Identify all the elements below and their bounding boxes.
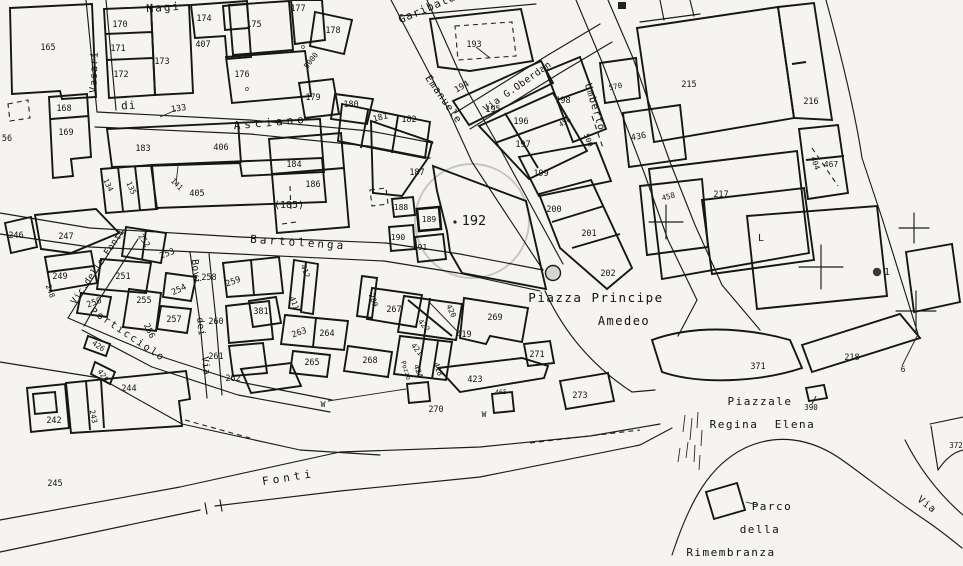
parcel-label-570: 570 bbox=[608, 81, 624, 93]
parcel-label-179: 179 bbox=[305, 93, 320, 103]
parcel-label-201: 201 bbox=[581, 229, 596, 239]
fountain-circle-icon bbox=[546, 266, 561, 281]
parcel-label-371: 371 bbox=[750, 362, 765, 372]
survey-point-icon bbox=[873, 268, 881, 276]
parcel-label-202: 202 bbox=[600, 269, 615, 279]
parcel-label-191: 191 bbox=[413, 243, 428, 252]
parcel-label-251: 251 bbox=[115, 272, 130, 282]
parcel-label-183: 183 bbox=[135, 144, 150, 154]
parcel-label-245: 245 bbox=[47, 479, 62, 489]
parcel-label-254: 254 bbox=[170, 282, 188, 298]
street-label-piazzale: Piazzale bbox=[728, 395, 793, 408]
parcel-label-195: 195 bbox=[485, 105, 500, 115]
parcel-label-198: 198 bbox=[555, 96, 570, 106]
symbol-label-o: o bbox=[245, 85, 249, 93]
symbol-label-w: W bbox=[482, 410, 487, 419]
parcel-label-273: 273 bbox=[572, 391, 587, 401]
parcel-label-165: 165 bbox=[40, 43, 55, 53]
parcel-label-246: 246 bbox=[8, 231, 23, 241]
parcel-label-180: 180 bbox=[343, 100, 358, 110]
parcel-label-271: 271 bbox=[529, 350, 544, 360]
street-label-elena: Elena bbox=[775, 418, 816, 431]
parcel-label--185-: (185) bbox=[274, 200, 304, 211]
street-label-bartolenga: Bartolenga bbox=[250, 233, 347, 253]
parcel-label-133: 133 bbox=[170, 103, 187, 115]
parcel-label-182: 182 bbox=[401, 115, 416, 125]
parcel-label-187: 187 bbox=[409, 168, 424, 178]
street-label-amedeo: Amedeo bbox=[598, 314, 650, 328]
street-label-bovi: Bovi bbox=[189, 259, 203, 285]
parcel-label-257: 257 bbox=[166, 315, 181, 325]
parcel-label-188: 188 bbox=[394, 203, 409, 212]
parcel-label-217: 217 bbox=[713, 190, 728, 200]
parcel-label-215: 215 bbox=[681, 80, 696, 90]
symbol-label-6: 6 bbox=[901, 365, 906, 374]
parcel-label-407: 407 bbox=[195, 40, 210, 50]
parcel-label-419: 419 bbox=[456, 330, 471, 340]
parcel-label-186: 186 bbox=[305, 180, 320, 190]
parcel-label-218: 218 bbox=[844, 353, 859, 363]
parcel-label-267: 267 bbox=[386, 305, 401, 315]
parcel-label-390: 390 bbox=[804, 403, 818, 412]
parcel-label-467: 467 bbox=[824, 160, 839, 169]
parcel-label-193: 193 bbox=[466, 40, 481, 50]
map-canvas[interactable]: MagiVasaridiAscianoGaribaldiEmanueleVia … bbox=[0, 0, 963, 566]
parcel-label-172: 172 bbox=[113, 70, 128, 80]
symbol-label-1: 1 bbox=[884, 267, 890, 278]
parcel-label-247: 247 bbox=[58, 232, 73, 242]
street-label-della: della bbox=[740, 523, 781, 536]
parcel-label-250: 250 bbox=[85, 296, 103, 311]
street-label-magi: Magi bbox=[146, 0, 181, 15]
parcel-label-216: 216 bbox=[803, 97, 818, 107]
church-cross-icons bbox=[649, 205, 936, 331]
street-label-regina: Regina bbox=[710, 418, 759, 431]
parcel-label-456: 456 bbox=[558, 116, 573, 129]
street-label-parco: Parco bbox=[752, 500, 793, 513]
vegetation-hatch bbox=[678, 412, 702, 470]
parcel-label-260: 260 bbox=[208, 317, 223, 327]
parcel-label-244: 244 bbox=[121, 384, 136, 394]
parcel-label-190: 190 bbox=[391, 233, 406, 242]
street-label-piazza-principe: Piazza Principe bbox=[528, 290, 663, 305]
symbol-label-o: o bbox=[301, 43, 305, 51]
parcel-label-405: 405 bbox=[189, 189, 204, 199]
parcel-label-252: 252 bbox=[136, 232, 152, 249]
parcel-label-412: 412 bbox=[299, 263, 312, 279]
parcel-label-255: 255 bbox=[136, 296, 151, 306]
parcel-label-425: 425 bbox=[95, 367, 110, 383]
parcel-label-197: 197 bbox=[515, 140, 530, 150]
parcel-label-261: 261 bbox=[208, 352, 223, 362]
parcel-label-372: 372 bbox=[949, 441, 963, 450]
parcel-label-249: 249 bbox=[52, 272, 67, 282]
parcel-label-170: 170 bbox=[112, 20, 127, 30]
parcel-label-189: 189 bbox=[422, 215, 437, 224]
parcel-label-178: 178 bbox=[325, 26, 340, 36]
parcel-label-423: 423 bbox=[467, 375, 482, 385]
parcel-label-56: 56 bbox=[2, 134, 12, 144]
map-mark bbox=[618, 2, 626, 9]
parcel-label-256: 256 bbox=[141, 322, 157, 340]
parcel-label-262: 262 bbox=[225, 374, 240, 384]
parcel-label-465: 465 bbox=[495, 388, 507, 396]
parcel-label-175: 175 bbox=[246, 20, 261, 30]
symbol-label-w: W bbox=[321, 400, 326, 409]
parcel-label-436: 436 bbox=[630, 131, 647, 144]
parcel-label-269: 269 bbox=[487, 313, 502, 323]
parcel-label-268: 268 bbox=[362, 356, 377, 366]
building-outlines bbox=[5, 0, 960, 519]
parcel-label-184: 184 bbox=[286, 160, 301, 170]
street-label-di: di bbox=[121, 98, 137, 112]
symbol-label-l: L bbox=[758, 233, 764, 244]
parcel-label-259: 259 bbox=[224, 275, 242, 290]
parcel-label-177: 177 bbox=[290, 4, 305, 14]
street-label-dei: dei bbox=[194, 317, 207, 337]
parcel-label-406: 406 bbox=[213, 143, 228, 153]
parcel-label-422: 422 bbox=[416, 317, 432, 333]
parcel-label-176: 176 bbox=[234, 70, 249, 80]
street-label-vasari: Vasari bbox=[88, 51, 100, 93]
parcel-label-168: 168 bbox=[56, 104, 71, 114]
parcel-label-458: 458 bbox=[661, 190, 677, 202]
street-label-asciano: Asciano bbox=[233, 113, 308, 132]
parcel-label-192: 192 bbox=[462, 213, 486, 229]
parcel-label-196: 196 bbox=[513, 117, 528, 127]
parcel-label-200: 200 bbox=[546, 205, 561, 215]
street-label-fonti: Fonti bbox=[261, 467, 316, 488]
parcel-label-171: 171 bbox=[110, 44, 125, 54]
parcel-label-181: 181 bbox=[372, 111, 389, 125]
parcel-label-169: 169 bbox=[58, 128, 73, 138]
parcel-label-381: 381 bbox=[253, 307, 268, 317]
parcel-label-pozzo: Pozzo bbox=[399, 360, 413, 381]
parcel-192-centroid-dot bbox=[453, 220, 456, 223]
street-label-via: Via bbox=[915, 494, 938, 516]
parcel-label-141: 141 bbox=[169, 176, 185, 192]
parcel-label-242: 242 bbox=[46, 416, 61, 426]
parcel-label-174: 174 bbox=[196, 14, 211, 24]
parcel-label-248: 248 bbox=[44, 283, 57, 299]
parcel-label-418: 418 bbox=[432, 361, 445, 377]
parcel-label-258: 258 bbox=[201, 273, 216, 283]
parcel-label-270: 270 bbox=[428, 405, 443, 415]
parcel-label-199: 199 bbox=[533, 169, 548, 179]
parcel-label-420: 420 bbox=[444, 303, 458, 320]
parcel-label-253: 253 bbox=[158, 247, 176, 262]
label-layer: MagiVasaridiAscianoGaribaldiEmanueleVia … bbox=[2, 0, 963, 559]
parcel-label-173: 173 bbox=[154, 57, 169, 67]
parcel-label-265: 265 bbox=[304, 358, 319, 368]
parcel-label-263: 263 bbox=[290, 326, 308, 341]
cadastral-map: MagiVasaridiAscianoGaribaldiEmanueleVia … bbox=[0, 0, 963, 566]
parcel-label-264: 264 bbox=[319, 329, 334, 339]
street-label-rimembranza: Rimembranza bbox=[686, 546, 775, 559]
